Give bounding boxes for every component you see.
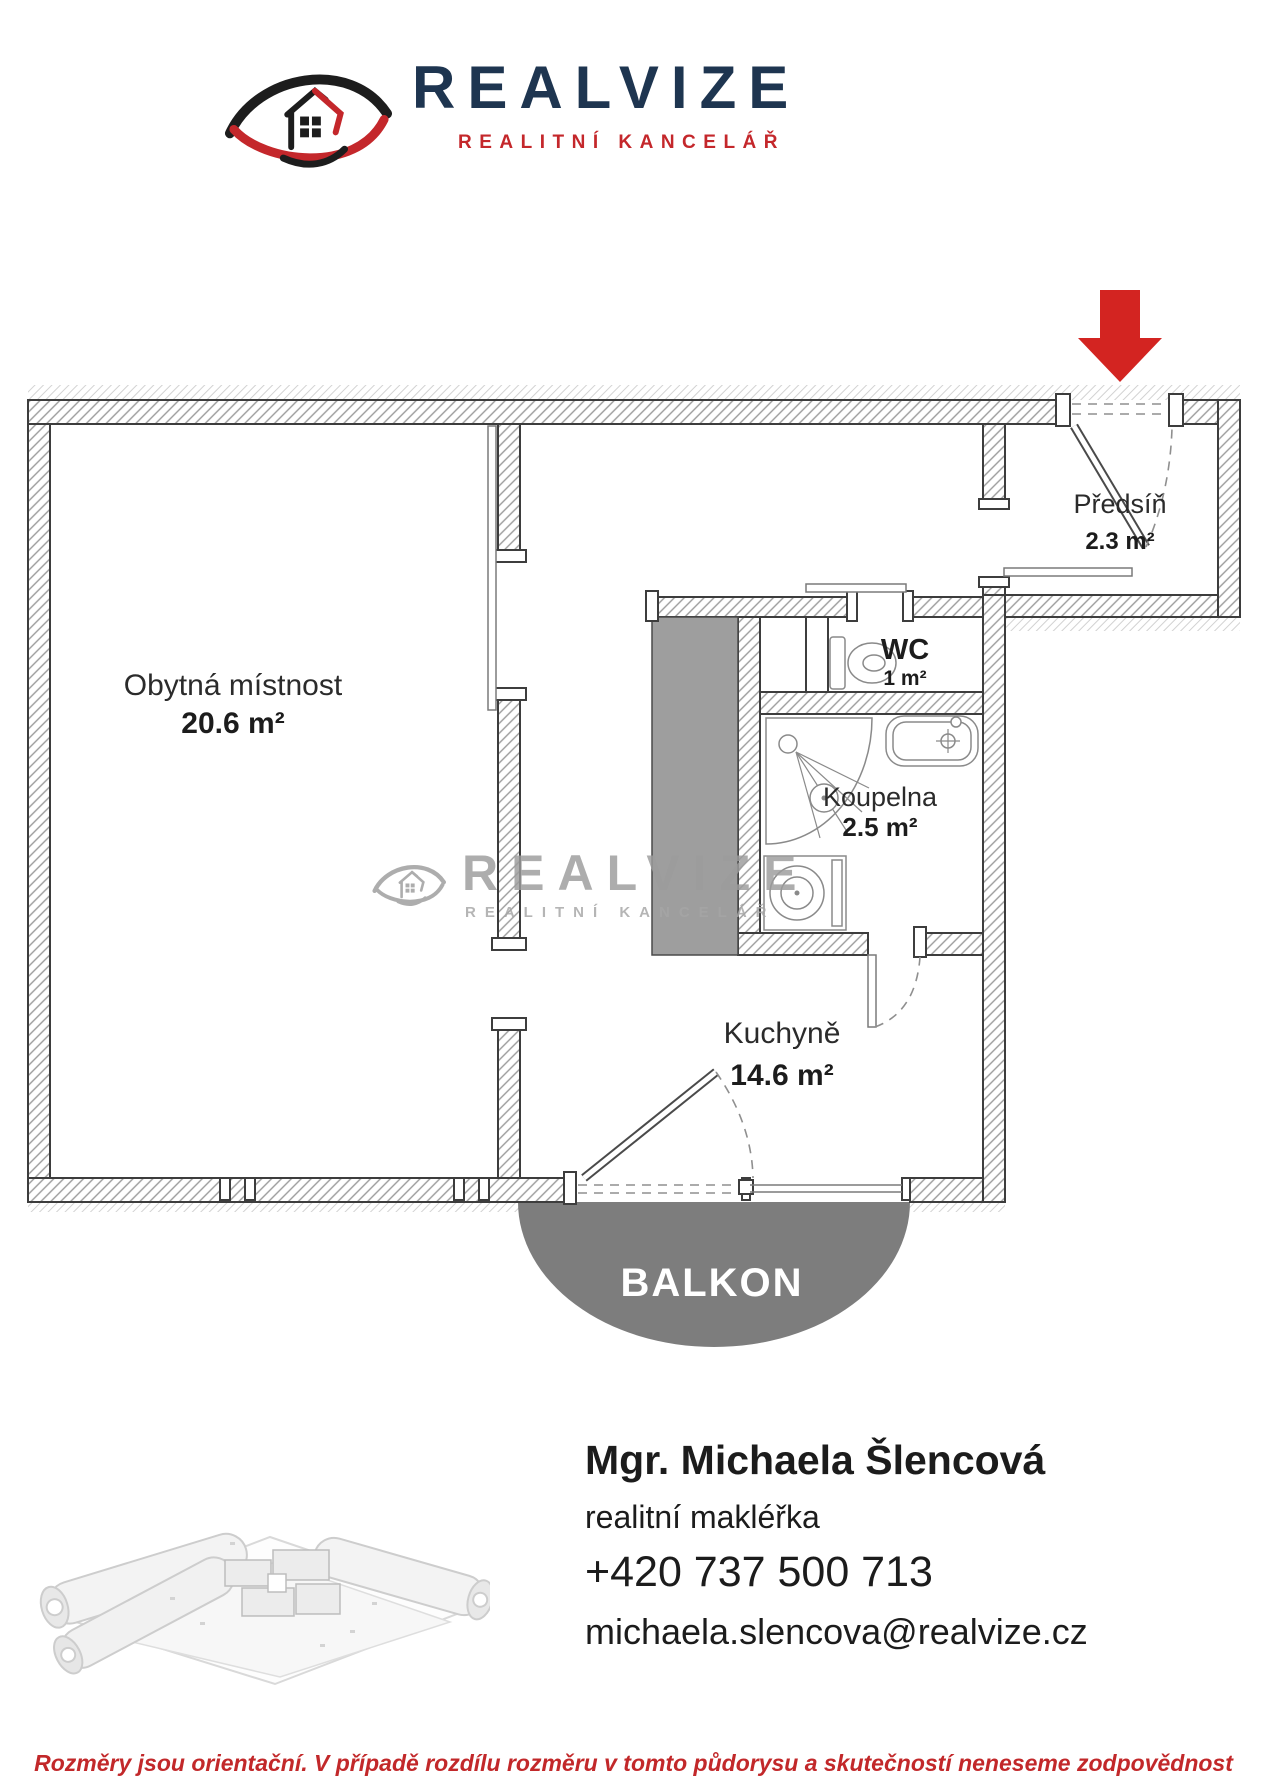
agent-email: michaela.slencova@realvize.cz [585, 1611, 1088, 1653]
room-name-wc: WC [881, 634, 929, 666]
entrance-door [1072, 404, 1172, 547]
washing-machine-icon [764, 856, 846, 930]
walls [28, 400, 1240, 1202]
bathroom-door-arc [875, 957, 920, 1027]
room-name-hall: Předsíň [1073, 489, 1166, 519]
room-labels: Obytná místnost 20.6 m² Předsíň 2.3 m² W… [124, 489, 1167, 1092]
agent-phone: +420 737 500 713 [585, 1548, 1088, 1597]
agent-name: Mgr. Michaela Šlencová [585, 1436, 1088, 1485]
shaft [652, 617, 738, 955]
room-area-living: 20.6 m² [181, 707, 284, 740]
agent-contact: Mgr. Michaela Šlencová realitní makléřka… [585, 1436, 1088, 1653]
room-area-hall: 2.3 m² [1085, 528, 1154, 555]
room-area-bathroom: 2.5 m² [842, 812, 917, 842]
balcony-label: BALKON [620, 1261, 803, 1305]
blueprint-illustration [20, 1392, 490, 1692]
entrance-arrow-down-icon [1078, 290, 1162, 382]
room-name-kitchen: Kuchyně [724, 1017, 841, 1050]
exterior-hatching [28, 385, 1240, 1212]
room-name-bathroom: Koupelna [823, 782, 938, 812]
balcony-door [578, 1072, 753, 1193]
agent-role: realitní makléřka [585, 1499, 1088, 1536]
room-area-kitchen: 14.6 m² [730, 1059, 833, 1092]
room-area-wc: 1 m² [883, 667, 926, 690]
room-name-living: Obytná místnost [124, 669, 343, 702]
disclaimer-text: Rozměry jsou orientační. V případě rozdí… [0, 1750, 1267, 1777]
bathtub-icon [886, 716, 978, 766]
balcony: BALKON [518, 1202, 910, 1347]
